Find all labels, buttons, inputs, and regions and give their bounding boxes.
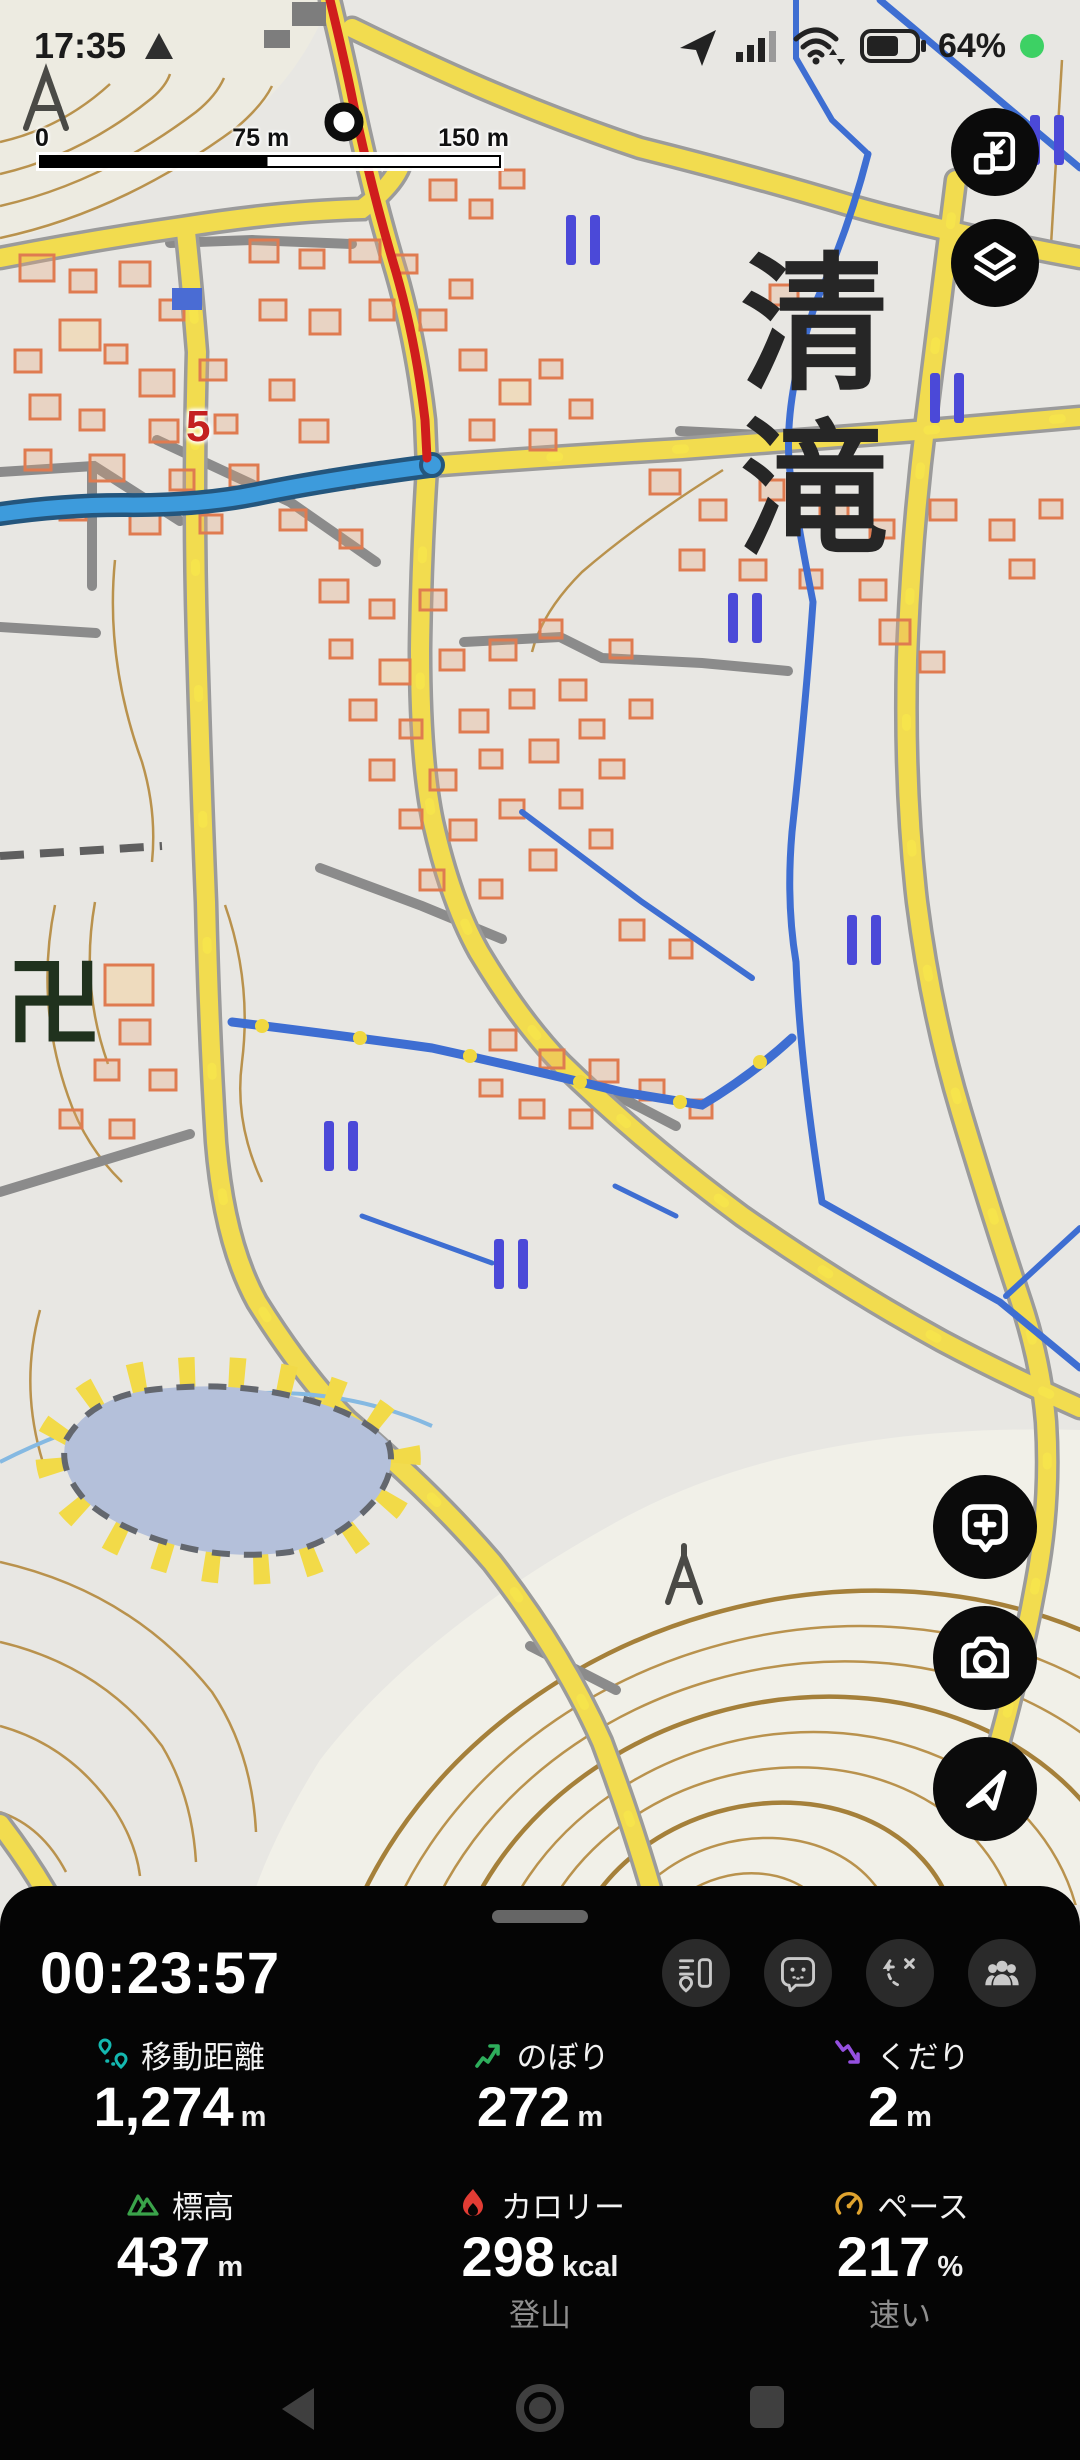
calories-flame-icon bbox=[455, 2186, 491, 2222]
panel-drag-handle[interactable] bbox=[492, 1910, 588, 1923]
route-with-x-icon bbox=[880, 1953, 920, 1993]
stat-unit: kcal bbox=[562, 2251, 618, 2283]
pace-gauge-icon bbox=[831, 2186, 867, 2222]
blue-building bbox=[172, 288, 202, 310]
stat-unit: % bbox=[937, 2251, 963, 2283]
stat-calories: カロリー 298kcal bbox=[360, 2186, 720, 2296]
stats-tracker-icon bbox=[676, 1953, 716, 1993]
stat-unit: m bbox=[906, 2101, 932, 2133]
stat-distance: 移動距離 1,274m bbox=[0, 2036, 360, 2146]
battery-percent: 64% bbox=[938, 27, 1006, 66]
camera-icon bbox=[955, 1628, 1015, 1688]
wifi-icon bbox=[792, 23, 848, 69]
stat-sub-labels: 登山 速い bbox=[0, 2290, 1080, 2335]
scale-start-label: 0 bbox=[35, 124, 49, 153]
stat-ascent: のぼり 272m bbox=[360, 2036, 720, 2146]
stat-value: 1,274 bbox=[94, 2075, 234, 2138]
navigation-arrow-icon bbox=[955, 1759, 1015, 1819]
map-layers-button[interactable] bbox=[951, 219, 1039, 307]
stat-label: 標高 bbox=[172, 2182, 234, 2227]
stat-value: 298 bbox=[462, 2225, 555, 2288]
android-navbar bbox=[0, 2374, 1080, 2460]
battery-icon bbox=[860, 28, 926, 64]
scale-end-label: 150 m bbox=[438, 124, 509, 153]
stat-value: 2 bbox=[868, 2075, 899, 2138]
add-field-memo-button[interactable] bbox=[933, 1475, 1037, 1579]
status-bar: 17:35 bbox=[0, 0, 1080, 92]
clock: 17:35 bbox=[34, 25, 126, 67]
field-memo-chat-button[interactable] bbox=[764, 1939, 832, 2007]
stat-descent: くだり 2m bbox=[720, 2036, 1080, 2146]
activity-dashboard-button[interactable] bbox=[662, 1939, 730, 2007]
stat-unit: m bbox=[577, 2101, 603, 2133]
stat-value: 217 bbox=[837, 2225, 930, 2288]
scale-mid-label: 75 m bbox=[232, 124, 289, 153]
scale-bar-graphic bbox=[39, 155, 501, 168]
route-edit-button[interactable] bbox=[866, 1939, 934, 2007]
topo-map[interactable] bbox=[0, 0, 1080, 1905]
stat-label: 移動距離 bbox=[141, 2032, 265, 2077]
pip-icon bbox=[969, 126, 1021, 178]
stat-elevation: 標高 437m bbox=[0, 2186, 360, 2296]
minimize-map-button[interactable] bbox=[951, 108, 1039, 196]
elevation-icon bbox=[126, 2186, 162, 2222]
chat-face-icon bbox=[778, 1953, 818, 1993]
group-members-button[interactable] bbox=[968, 1939, 1036, 2007]
add-memo-icon bbox=[955, 1497, 1015, 1557]
camera-button[interactable] bbox=[933, 1606, 1037, 1710]
sub-empty bbox=[0, 2290, 360, 2335]
layers-icon bbox=[968, 236, 1022, 290]
map-scale-bar: 0 75 m 150 m bbox=[39, 124, 501, 172]
descent-icon bbox=[831, 2036, 867, 2072]
pace-rating-label: 速い bbox=[720, 2290, 1080, 2335]
activity-type-label: 登山 bbox=[360, 2290, 720, 2335]
stat-label: カロリー bbox=[501, 2182, 625, 2227]
dashed-path-road bbox=[0, 846, 162, 856]
tracking-panel: 00:23:57 bbox=[0, 1886, 1080, 2460]
data-saver-icon bbox=[142, 31, 176, 61]
location-active-icon bbox=[674, 22, 722, 70]
stat-label: ペース bbox=[877, 2182, 968, 2227]
signal-strength-icon bbox=[734, 26, 780, 66]
route-pins-icon bbox=[95, 2036, 131, 2072]
stat-value: 437 bbox=[117, 2225, 210, 2288]
stat-value: 272 bbox=[477, 2075, 570, 2138]
group-icon bbox=[982, 1953, 1022, 1993]
nav-back-button[interactable] bbox=[282, 2388, 314, 2430]
privacy-indicator-dot bbox=[1018, 32, 1046, 60]
stat-unit: m bbox=[241, 2101, 267, 2133]
elapsed-timer: 00:23:57 bbox=[40, 1940, 280, 2007]
recenter-location-button[interactable] bbox=[933, 1737, 1037, 1841]
ascent-icon bbox=[471, 2036, 507, 2072]
stat-label: のぼり bbox=[517, 2032, 610, 2077]
stat-pace: ペース 217% bbox=[720, 2186, 1080, 2296]
nav-recents-button[interactable] bbox=[750, 2386, 784, 2428]
panel-actions bbox=[662, 1939, 1036, 2007]
stats-grid: 移動距離 1,274m のぼり 272m bbox=[0, 2036, 1080, 2296]
stat-unit: m bbox=[217, 2251, 243, 2283]
nav-home-button[interactable] bbox=[516, 2384, 564, 2432]
stat-label: くだり bbox=[877, 2032, 970, 2077]
app-screen: 清滝 5 卍 0 75 m 150 m 17:35 bbox=[0, 0, 1080, 2460]
